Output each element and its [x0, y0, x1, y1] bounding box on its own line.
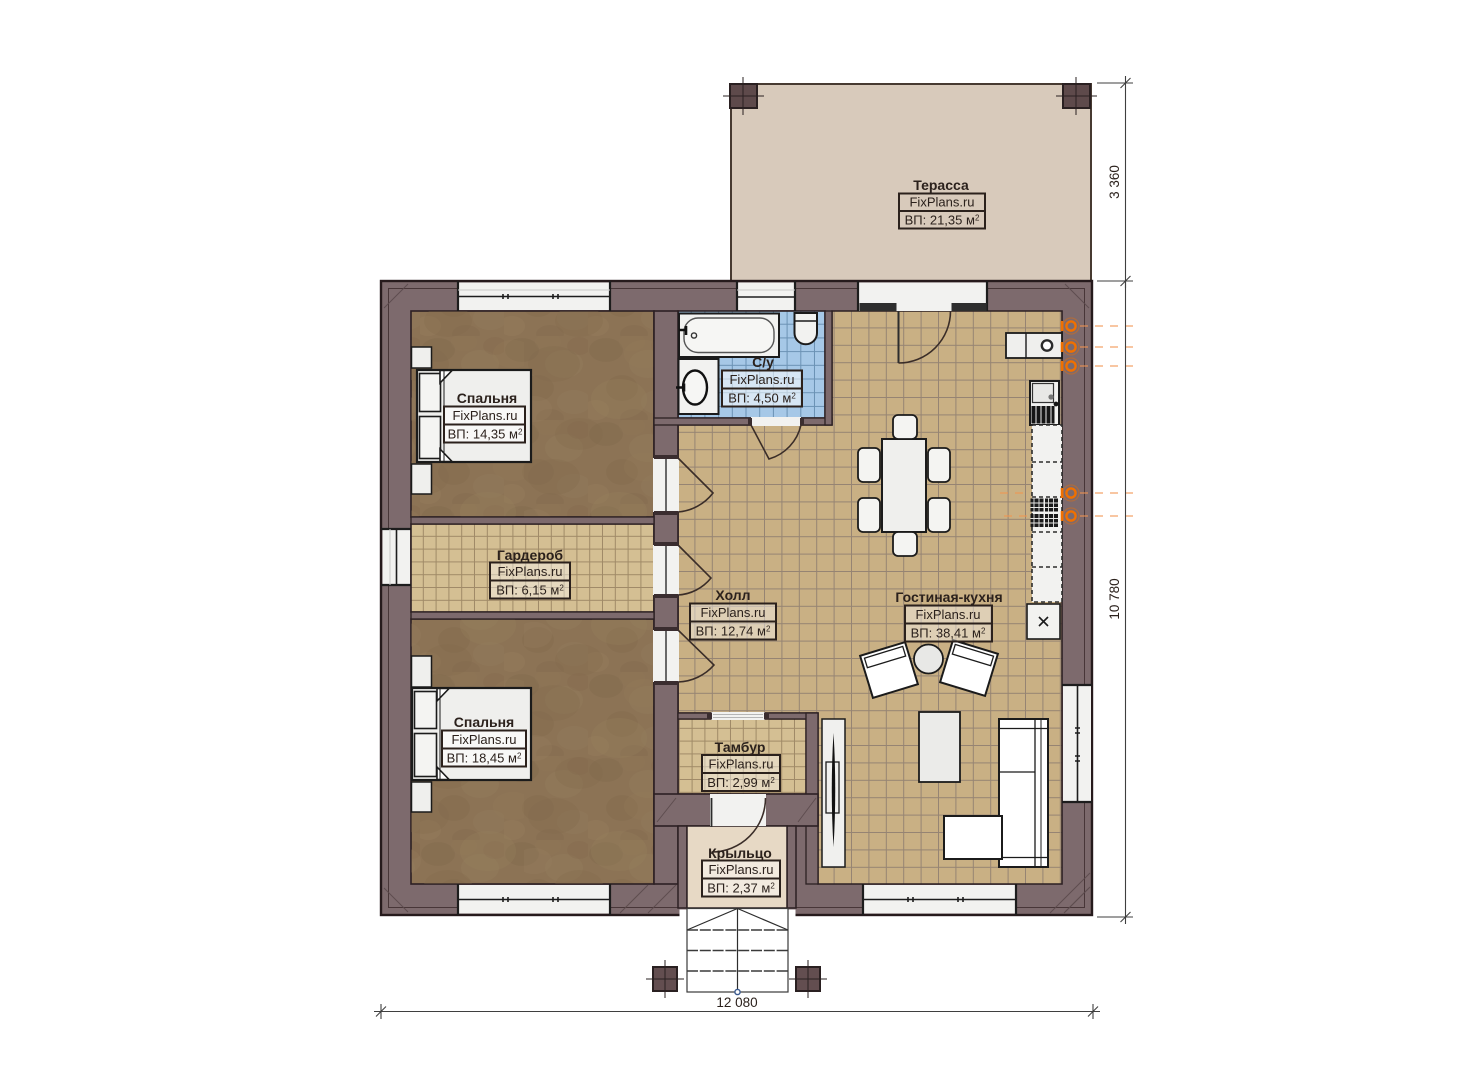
svg-text:Тамбур: Тамбур — [715, 739, 766, 755]
svg-text:С/у: С/у — [752, 354, 774, 370]
svg-text:FixPlans.ru: FixPlans.ru — [909, 195, 974, 210]
svg-text:ВП: 12,74 м2: ВП: 12,74 м2 — [696, 624, 771, 639]
svg-text:12 080: 12 080 — [716, 995, 757, 1010]
svg-text:Гостиная-кухня: Гостиная-кухня — [895, 589, 1002, 605]
svg-text:ВП: 21,35 м2: ВП: 21,35 м2 — [905, 213, 980, 228]
svg-text:Холл: Холл — [715, 587, 750, 603]
svg-text:Гардероб: Гардероб — [497, 547, 564, 563]
svg-text:Терасса: Терасса — [913, 177, 969, 193]
svg-text:ВП: 4,50 м2: ВП: 4,50 м2 — [728, 391, 796, 406]
svg-text:10 780: 10 780 — [1107, 578, 1122, 619]
svg-text:Спальня: Спальня — [454, 714, 514, 730]
svg-text:ВП: 18,45 м2: ВП: 18,45 м2 — [447, 751, 522, 766]
svg-text:Крыльцо: Крыльцо — [708, 845, 772, 861]
svg-text:ВП: 2,99 м2: ВП: 2,99 м2 — [707, 775, 775, 790]
svg-text:FixPlans.ru: FixPlans.ru — [451, 732, 516, 747]
svg-text:ВП: 14,35 м2: ВП: 14,35 м2 — [448, 427, 523, 442]
svg-text:ВП: 38,41 м2: ВП: 38,41 м2 — [911, 626, 986, 641]
svg-text:FixPlans.ru: FixPlans.ru — [452, 408, 517, 423]
svg-text:ВП: 2,37 м2: ВП: 2,37 м2 — [707, 881, 775, 896]
svg-text:FixPlans.ru: FixPlans.ru — [708, 757, 773, 772]
svg-text:FixPlans.ru: FixPlans.ru — [729, 372, 794, 387]
svg-text:FixPlans.ru: FixPlans.ru — [700, 605, 765, 620]
svg-text:Спальня: Спальня — [457, 390, 517, 406]
svg-text:3 360: 3 360 — [1107, 165, 1122, 199]
svg-text:FixPlans.ru: FixPlans.ru — [915, 607, 980, 622]
svg-text:FixPlans.ru: FixPlans.ru — [497, 564, 562, 579]
svg-text:FixPlans.ru: FixPlans.ru — [708, 862, 773, 877]
svg-text:ВП: 6,15 м2: ВП: 6,15 м2 — [496, 583, 564, 598]
